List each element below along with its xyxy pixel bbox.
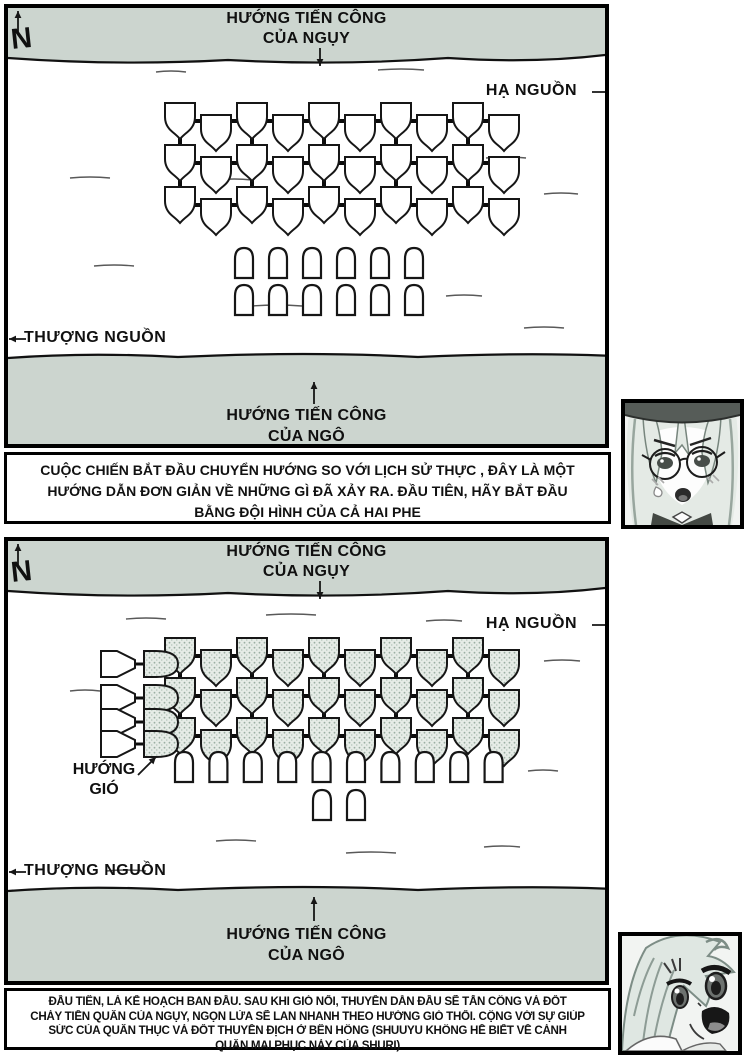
upstream-label: THƯỢNG NGUỒN [24,862,166,880]
caption-line: SỨC CỦA QUÂN THỤC VÀ ĐỐT THUYỀN ĐỊCH Ở B… [7,1024,608,1039]
manga-face-shout-icon [622,936,738,1051]
caption-line: CUỘC CHIẾN BẮT ĐẦU CHUYỂN HƯỚNG SO VỚI L… [7,460,608,481]
caption-line: ĐẦU TIÊN, LÀ KẾ HOẠCH BAN ĐẦU. SAU KHI G… [7,995,608,1010]
manga-page: { "colors": { "ink": "#161616", "bank": … [0,0,750,1061]
caption-box-1: CUỘC CHIẾN BẮT ĐẦU CHUYỂN HƯỚNG SO VỚI L… [4,452,611,524]
upstream-label: THƯỢNG NGUỒN [24,329,166,347]
attack-direction-wei-label: HƯỚNG TIẾN CÔNG CỦA NGỤY [8,9,605,49]
caption-line: CHÁY TIỀN QUÂN CỦA NGỤY, NGỌN LỬA SẼ LAN… [7,1010,608,1025]
character-portrait-2 [618,932,742,1055]
caption-line: HƯỚNG DẪN ĐƠN GIẢN VỀ NHỮNG GÌ ĐÃ XẢY RA… [7,481,608,502]
wind-direction-label: HƯỚNG GIÓ [64,760,144,800]
attack-direction-wu-label: HƯỚNG TIẾN CÔNG CỦA NGÔ [8,924,605,966]
caption-line: BẰNG ĐỘI HÌNH CỦA CẢ HAI PHE [7,502,608,523]
caption-line: QUÂN MAI PHỤC NÀY CỦA SHURI) [7,1039,608,1054]
battle-diagram-panel-1: N HƯỚNG TIẾN CÔNG CỦA NGỤY HẠ NGUỒN THƯỢ… [4,4,609,448]
attack-direction-wei-label: HƯỚNG TIẾN CÔNG CỦA NGỤY [8,542,605,582]
attack-direction-wu-label: HƯỚNG TIẾN CÔNG CỦA NGÔ [8,405,605,447]
downstream-label: HẠ NGUỒN [486,615,577,633]
downstream-label: HẠ NGUỒN [486,82,577,100]
river-battle-diagram-1 [8,8,609,444]
character-portrait-1 [621,399,744,529]
caption-box-2: ĐẦU TIÊN, LÀ KẾ HOẠCH BAN ĐẦU. SAU KHI G… [4,988,611,1050]
manga-face-glasses-icon [625,403,740,525]
battle-diagram-panel-2: N HƯỚNG TIẾN CÔNG CỦA NGỤY HẠ NGUỒN HƯỚN… [4,537,609,985]
